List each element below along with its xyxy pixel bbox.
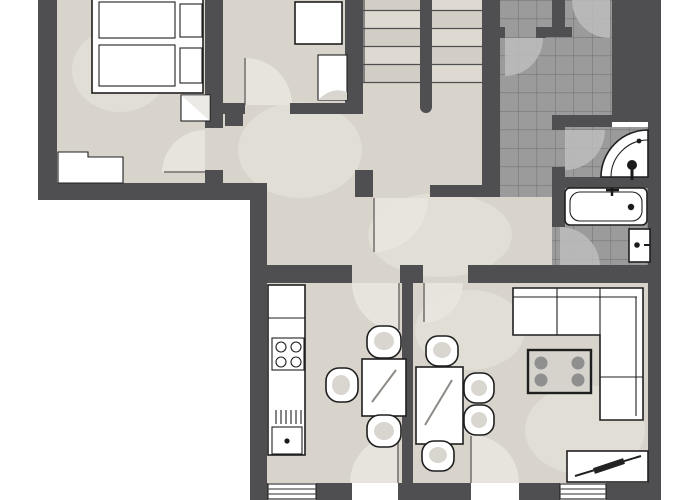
chair-seat-shade <box>332 375 350 395</box>
table-leg <box>572 357 585 370</box>
outer-wall-bottom-seg2 <box>316 483 352 500</box>
basin-tap-icon <box>634 242 640 248</box>
outer-wall-right <box>648 115 661 500</box>
dresser <box>58 152 123 183</box>
study-bottom-wall-left <box>222 103 245 114</box>
desk <box>295 2 342 44</box>
living-window <box>560 484 606 499</box>
sink-drain-icon <box>284 438 289 443</box>
stair-tread <box>432 65 482 83</box>
shower-bath-divider-wall <box>552 177 648 188</box>
stair-center-wall <box>420 0 432 107</box>
chair-seat-shade <box>471 412 487 428</box>
corridor-door-post <box>355 170 373 197</box>
entry-door-post-left <box>494 27 505 38</box>
bedroom-door-post <box>205 170 223 185</box>
stair-tread <box>432 47 482 65</box>
chair-seat-shade <box>433 342 451 358</box>
entry-door-mullion-foot <box>546 27 572 37</box>
stair-tread <box>432 0 482 11</box>
stair-center-wall-end <box>420 101 432 113</box>
mattress <box>99 2 175 38</box>
mattress <box>99 45 175 86</box>
chair-seat-shade <box>374 422 394 440</box>
entry-door-mullion <box>552 0 565 28</box>
dining-table <box>416 367 463 444</box>
study-door-post <box>225 114 243 126</box>
floor-plan <box>0 0 700 500</box>
outer-wall-bottom-seg4 <box>519 483 560 500</box>
corridor-hall-wall <box>430 185 500 197</box>
outer-wall-bottom-seg3 <box>398 483 471 500</box>
pillow <box>180 48 202 83</box>
outer-wall-kitchen-left <box>250 183 267 500</box>
corridor-south-wall-seg3 <box>468 265 661 283</box>
table-leg <box>535 374 548 387</box>
stair-tread <box>363 47 420 65</box>
stair-tread <box>432 11 482 29</box>
coffee-table <box>528 350 591 393</box>
floor-plan-canvas <box>0 0 700 500</box>
shower-room-left-wall-upper <box>552 115 565 130</box>
stair-tread <box>363 65 420 83</box>
outer-wall-bedroom-bottom <box>38 183 255 200</box>
chair-seat-shade <box>374 332 394 350</box>
pillow <box>180 4 202 37</box>
table-leg <box>572 374 585 387</box>
bathtub <box>565 188 647 225</box>
shower-room-top-wall <box>565 115 612 127</box>
chair-seat-shade <box>471 380 487 396</box>
hall-passage-tiles <box>500 185 552 197</box>
stair-tread <box>363 0 420 11</box>
shower-valve-icon <box>637 139 642 144</box>
wall-block-top-right <box>612 0 661 122</box>
stair-tread <box>432 29 482 47</box>
bathroom-left-wall <box>552 188 565 227</box>
chair-seat-shade <box>429 447 447 463</box>
corridor-south-wall-seg2 <box>400 265 423 283</box>
corridor-south-wall-seg1 <box>267 265 352 283</box>
stair-tread <box>363 11 420 29</box>
study-right-wall <box>345 0 363 114</box>
table-leg <box>535 357 548 370</box>
outer-wall-bottom-seg1 <box>250 483 268 500</box>
entry-door-post-right <box>536 27 546 38</box>
outer-wall-left <box>38 0 57 200</box>
kitchen-window <box>268 484 316 499</box>
stair-tread <box>363 29 420 47</box>
bathtub-drain-icon <box>628 204 634 210</box>
